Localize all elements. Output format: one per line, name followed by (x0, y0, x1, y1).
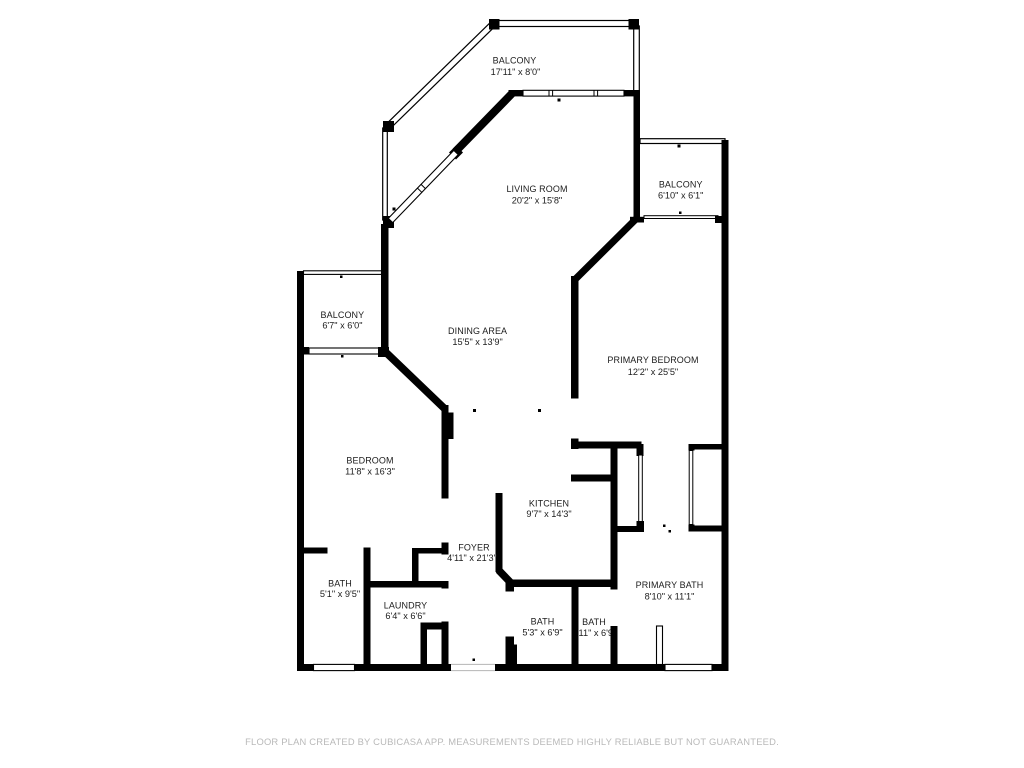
svg-text:5'1" x 9'5": 5'1" x 9'5" (320, 589, 360, 599)
svg-text:PRIMARY BEDROOM: PRIMARY BEDROOM (607, 355, 698, 365)
svg-text:DINING AREA: DINING AREA (448, 326, 507, 336)
svg-text:5'3" x 6'9": 5'3" x 6'9" (522, 628, 562, 638)
svg-text:BEDROOM: BEDROOM (346, 456, 393, 466)
svg-text:LAUNDRY: LAUNDRY (384, 601, 428, 611)
svg-text:FOYER: FOYER (458, 543, 490, 553)
svg-text:6'10" x 6'1": 6'10" x 6'1" (658, 191, 703, 201)
svg-text:PRIMARY BATH: PRIMARY BATH (636, 580, 704, 590)
svg-text:BALCONY: BALCONY (659, 180, 703, 190)
svg-text:15'5" x 13'9": 15'5" x 13'9" (452, 337, 502, 347)
svg-text:20'2" x 15'8": 20'2" x 15'8" (512, 196, 562, 206)
svg-text:6'7" x 6'0": 6'7" x 6'0" (322, 321, 362, 331)
svg-text:17'11" x 8'0": 17'11" x 8'0" (491, 67, 541, 77)
svg-text:11'8" x 16'3": 11'8" x 16'3" (345, 467, 395, 477)
svg-text:BALCONY: BALCONY (321, 310, 365, 320)
svg-text:4'11" x 21'3": 4'11" x 21'3" (447, 553, 497, 563)
svg-text:BALCONY: BALCONY (493, 56, 537, 66)
svg-text:6'4" x 6'6": 6'4" x 6'6" (385, 611, 425, 621)
svg-text:BATH: BATH (328, 579, 352, 589)
svg-text:FLOOR PLAN CREATED BY CUBICASA: FLOOR PLAN CREATED BY CUBICASA APP. MEAS… (245, 736, 779, 747)
svg-text:LIVING ROOM: LIVING ROOM (506, 184, 567, 194)
svg-text:9'7" x 14'3": 9'7" x 14'3" (526, 509, 571, 519)
svg-text:8'10" x 11'1": 8'10" x 11'1" (645, 592, 695, 602)
svg-text:BATH: BATH (531, 617, 555, 627)
svg-text:KITCHEN: KITCHEN (529, 499, 569, 509)
svg-text:BATH: BATH (582, 617, 606, 627)
svg-text:12'2" x 25'5": 12'2" x 25'5" (628, 367, 678, 377)
